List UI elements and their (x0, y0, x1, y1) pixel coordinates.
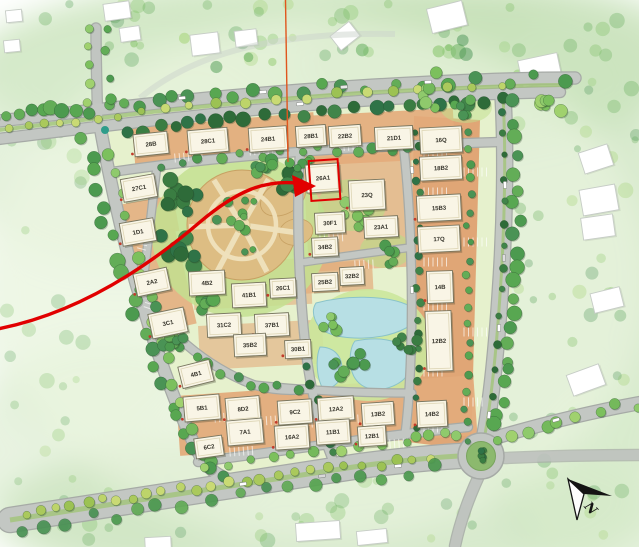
building-16A2: 16A2 (270, 424, 311, 453)
building-label: 23A1 (374, 225, 389, 232)
building-6C2: 6C2 (194, 435, 226, 461)
outside-building (581, 214, 617, 242)
car (487, 411, 491, 418)
car (394, 464, 401, 468)
outside-building (3, 39, 22, 54)
building-label: 28B1 (304, 133, 319, 140)
car (296, 102, 303, 106)
building-label: 30F1 (323, 221, 338, 228)
outside-building (5, 9, 24, 24)
building-30F1: 30F1 (314, 212, 347, 237)
building-25B2: 25B2 (312, 272, 341, 293)
building-label: 31C2 (217, 323, 232, 330)
building-15B3: 15B3 (412, 194, 463, 225)
car (410, 166, 414, 173)
building-label: 14B2 (425, 412, 440, 419)
building-24B1: 24B1 (244, 126, 289, 155)
building-label: 23Q (361, 193, 373, 200)
building-7A1: 7A1 (226, 418, 266, 448)
building-32B2: 32B2 (340, 266, 367, 287)
building-label: 12A2 (329, 406, 344, 413)
building-5B1: 5B1 (179, 394, 223, 425)
building-26A1-highlighted: 26A1 (301, 163, 342, 196)
masterplan-image: 28B28C124B128B122B221D116Q18B215B317Q14B… (0, 0, 639, 547)
car (503, 181, 506, 188)
building-label: 26C1 (276, 286, 291, 293)
car (424, 80, 431, 84)
building-22B2: 22B2 (328, 124, 363, 149)
car (502, 254, 505, 261)
building-30B1: 30B1 (281, 339, 313, 361)
building-17Q: 17Q (417, 225, 462, 255)
building-23Q: 23Q (344, 179, 387, 213)
building-label: 37B1 (265, 323, 280, 330)
building-label: 32B2 (345, 274, 360, 281)
building-label: 16Q (435, 138, 447, 145)
building-label: 35B2 (243, 343, 258, 350)
building-label: 14B (434, 285, 446, 291)
outside-building (145, 536, 173, 547)
car (178, 96, 185, 100)
building-4B2: 4B2 (188, 270, 227, 298)
building-26C1: 26C1 (266, 278, 298, 301)
car (497, 324, 500, 331)
car (259, 90, 266, 94)
building-label: 9C2 (289, 410, 301, 417)
building-label: 16A2 (285, 434, 300, 441)
building-9C2: 9C2 (273, 399, 314, 428)
building-label: 41B1 (242, 293, 257, 300)
car (318, 474, 325, 478)
building-23A1: 23A1 (363, 216, 400, 241)
building-16Q: 16Q (419, 126, 464, 156)
building-label: 17Q (433, 237, 445, 244)
building-35B2: 35B2 (233, 333, 268, 359)
intersection-planter (101, 126, 109, 134)
building-label: 22B2 (338, 133, 353, 140)
building-label: 24B1 (261, 136, 276, 143)
outside-building (295, 520, 342, 543)
building-label: 18B2 (434, 166, 449, 173)
building-label: 11B1 (326, 429, 341, 436)
building-label: 7A1 (239, 429, 251, 436)
outside-building (119, 25, 142, 43)
building-label: 8D2 (237, 406, 249, 413)
outside-building (103, 1, 133, 23)
car (340, 85, 347, 89)
building-14B2: 14B2 (412, 400, 449, 430)
building-28B: 28B (129, 131, 171, 159)
building-label: 5B1 (196, 405, 208, 412)
building-12B1: 12B1 (353, 425, 388, 449)
building-11B1: 11B1 (315, 419, 352, 447)
building-label: 28B (145, 141, 157, 148)
outside-building (356, 528, 389, 547)
building-18B2: 18B2 (419, 155, 464, 183)
building-13B2: 13B2 (357, 401, 396, 429)
building-41B1: 41B1 (231, 282, 268, 310)
building-14B: 14B (423, 271, 456, 306)
site-plan-svg: 28B28C124B128B122B221D116Q18B215B317Q14B… (0, 0, 639, 547)
building-label: 4B2 (201, 281, 213, 288)
building-28C1: 28C1 (183, 127, 230, 157)
building-label: 12B1 (365, 433, 380, 440)
car (410, 286, 413, 293)
building-label: 15B3 (432, 206, 447, 213)
building-21D1: 21D1 (374, 125, 415, 152)
building-label: 25B2 (318, 280, 333, 287)
building-label: 34B2 (318, 245, 333, 252)
building-label: 30B1 (291, 347, 306, 354)
building-28B1: 28B1 (295, 124, 328, 149)
building-label: 21D1 (387, 136, 402, 143)
building-label: 26A1 (316, 175, 331, 182)
building-label: 13B2 (371, 411, 386, 418)
building-label: 12B2 (432, 339, 447, 346)
building-34B2: 34B2 (308, 237, 340, 260)
